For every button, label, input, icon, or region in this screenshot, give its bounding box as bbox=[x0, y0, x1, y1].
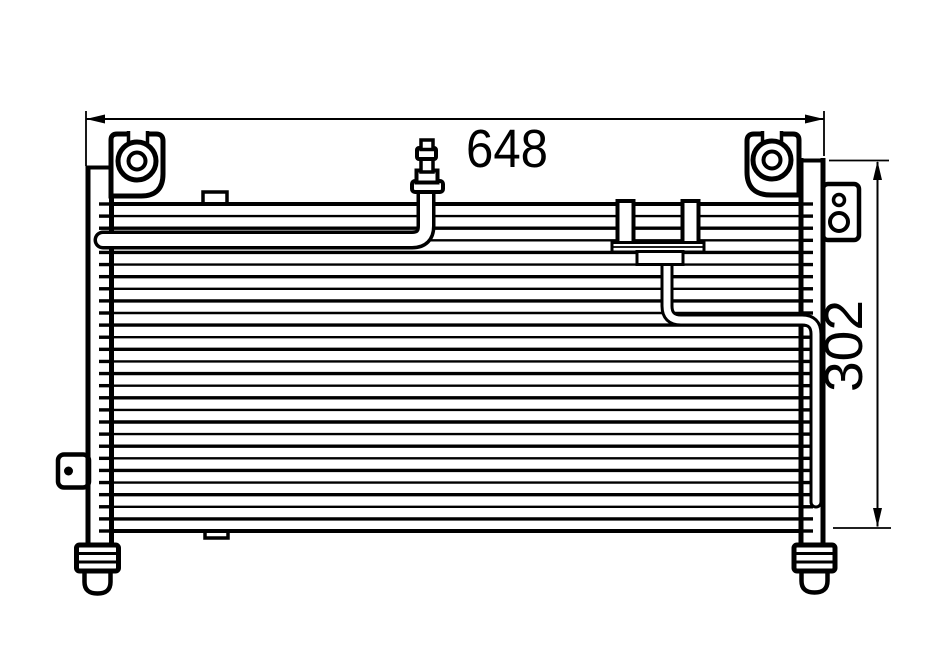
liquid-pipe-bore bbox=[667, 262, 816, 502]
pipe-clamp bbox=[683, 201, 699, 246]
arrowhead-right-icon bbox=[805, 115, 824, 124]
dimension-width-label: 648 bbox=[466, 119, 548, 179]
condenser-technical-drawing: 648 302 bbox=[0, 0, 946, 672]
left-fitting-band bbox=[77, 545, 119, 571]
right-fitting-band bbox=[794, 545, 835, 571]
liquid-pipe-outline bbox=[667, 262, 816, 502]
dimension-width: 648 bbox=[86, 111, 824, 179]
mounting-bracket-top-right bbox=[747, 128, 799, 195]
side-bracket-small-hole bbox=[834, 195, 845, 206]
valve-cap-top bbox=[421, 140, 433, 150]
pipe-clamp-assembly bbox=[612, 201, 704, 265]
arrowhead-up-icon bbox=[873, 161, 882, 180]
service-valve bbox=[412, 140, 443, 192]
mounting-bracket-top-left bbox=[111, 128, 163, 196]
side-tab-left-body bbox=[58, 455, 89, 488]
side-tab-left bbox=[58, 455, 89, 488]
bottom-fitting-right bbox=[794, 545, 835, 593]
clamp-block bbox=[637, 252, 683, 265]
side-bracket-right bbox=[823, 184, 859, 240]
arrowhead-left-icon bbox=[86, 115, 105, 124]
arrowhead-down-icon bbox=[873, 508, 882, 527]
liquid-pipe bbox=[667, 262, 816, 502]
side-bracket-large-hole bbox=[830, 213, 848, 231]
bottom-fitting-left bbox=[77, 545, 119, 594]
bracket-bushing-inner bbox=[764, 152, 781, 169]
drawing-canvas: 648 302 bbox=[0, 0, 946, 672]
pipe-clamp bbox=[618, 201, 634, 246]
dimension-height-label: 302 bbox=[814, 300, 874, 392]
side-tab-left-hole bbox=[64, 467, 73, 476]
bracket-bushing-inner bbox=[129, 153, 146, 170]
bracket-notch bbox=[129, 128, 148, 141]
